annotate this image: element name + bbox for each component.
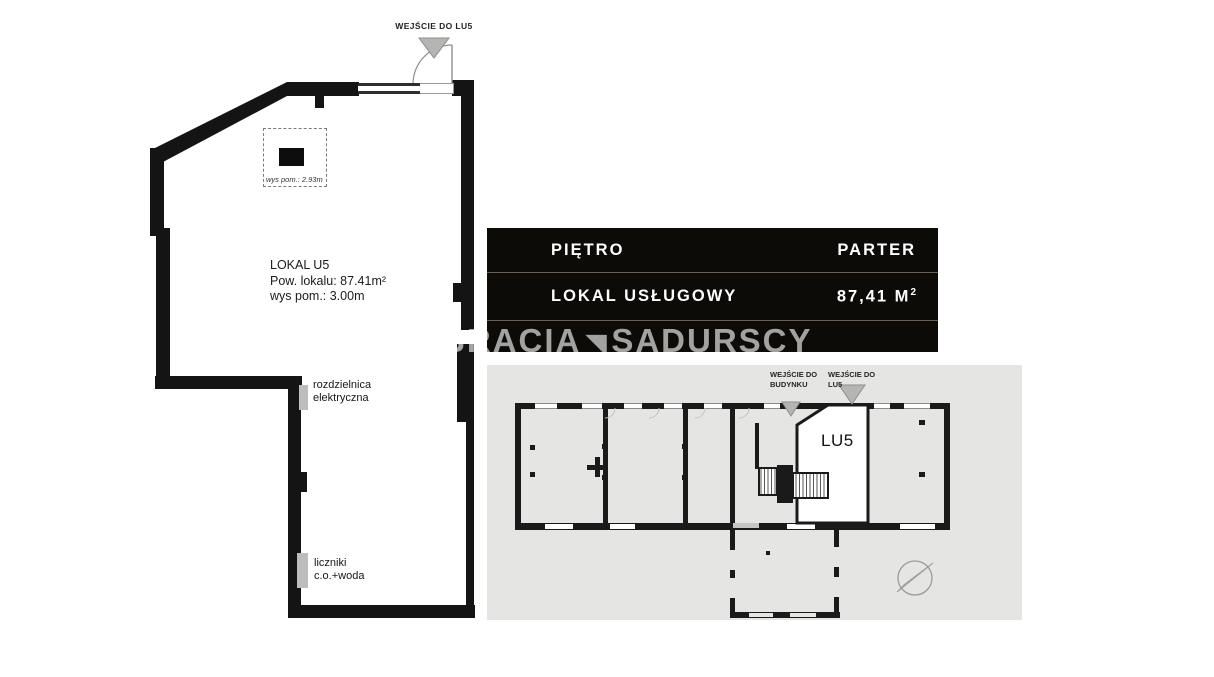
minimap-annex — [730, 530, 840, 618]
watermark-logo-icon: ◥ — [586, 328, 606, 358]
minimap-lu5-area — [797, 405, 868, 523]
unit-type-label: LOKAL USŁUGOWY — [551, 287, 737, 306]
wall-segment — [315, 93, 324, 108]
ceiling-height-marker — [279, 148, 304, 166]
wall-segment — [150, 148, 164, 236]
wall-segment — [453, 283, 462, 302]
electrical-box-label: rozdzielnica elektryczna — [313, 379, 371, 406]
lu5-unit-label: LU5 — [821, 431, 854, 451]
minimap-stairs — [759, 468, 828, 498]
entrance-marker-icon — [419, 38, 449, 58]
wall-segment — [156, 228, 170, 388]
compass-icon — [897, 561, 933, 595]
unit-info-text: LOKAL U5 Pow. lokalu: 87.41m² wys pom.: … — [270, 258, 386, 305]
meters-marker — [297, 553, 308, 588]
info-panel-row-unit: LOKAL USŁUGOWY 87,41 M2 — [487, 273, 938, 320]
wall-segment — [155, 376, 302, 389]
building-entrance-label: WEJŚCIE DO BUDYNKU — [770, 370, 817, 390]
unit-area-value: 87,41 M2 — [837, 287, 916, 307]
floor-label: PIĘTRO — [551, 241, 624, 260]
info-panel-row-floor: PIĘTRO PARTER — [487, 228, 938, 272]
agency-watermark: BRACIA◥SADURSCY — [441, 322, 813, 360]
entrance-label: WEJŚCIE DO LU5 — [385, 21, 483, 31]
meters-label: liczniki c.o.+woda — [314, 557, 364, 584]
wall-segment — [461, 82, 474, 330]
lu5-entrance-label: WEJŚCIE DO LU5 — [828, 370, 875, 390]
ceiling-height-note: wys pom.: 2.93m — [266, 175, 323, 184]
floor-value: PARTER — [837, 241, 916, 260]
wall-segment — [288, 605, 475, 618]
minimap-door-arcs — [605, 408, 749, 418]
minimap-bottom-door — [733, 523, 759, 528]
watermark-suffix: SADURSCY — [611, 322, 812, 359]
minimap-building-walls — [515, 403, 950, 530]
wall-segment — [300, 472, 307, 492]
watermark-prefix: BRACIA — [441, 322, 581, 359]
building-overview-drawing — [487, 365, 1022, 620]
floor-plan-page: WEJŚCIE DO LU5 wys pom.: 2.93m LOKAL U5 … — [0, 0, 1214, 677]
electrical-box-marker — [299, 385, 308, 410]
wall-segment — [466, 422, 474, 607]
area-superscript: 2 — [910, 287, 916, 298]
entrance-door-swing — [413, 45, 452, 84]
building-overview-panel — [487, 365, 1022, 620]
window — [358, 83, 420, 94]
ceiling-height-box: wys pom.: 2.93m — [263, 128, 327, 187]
